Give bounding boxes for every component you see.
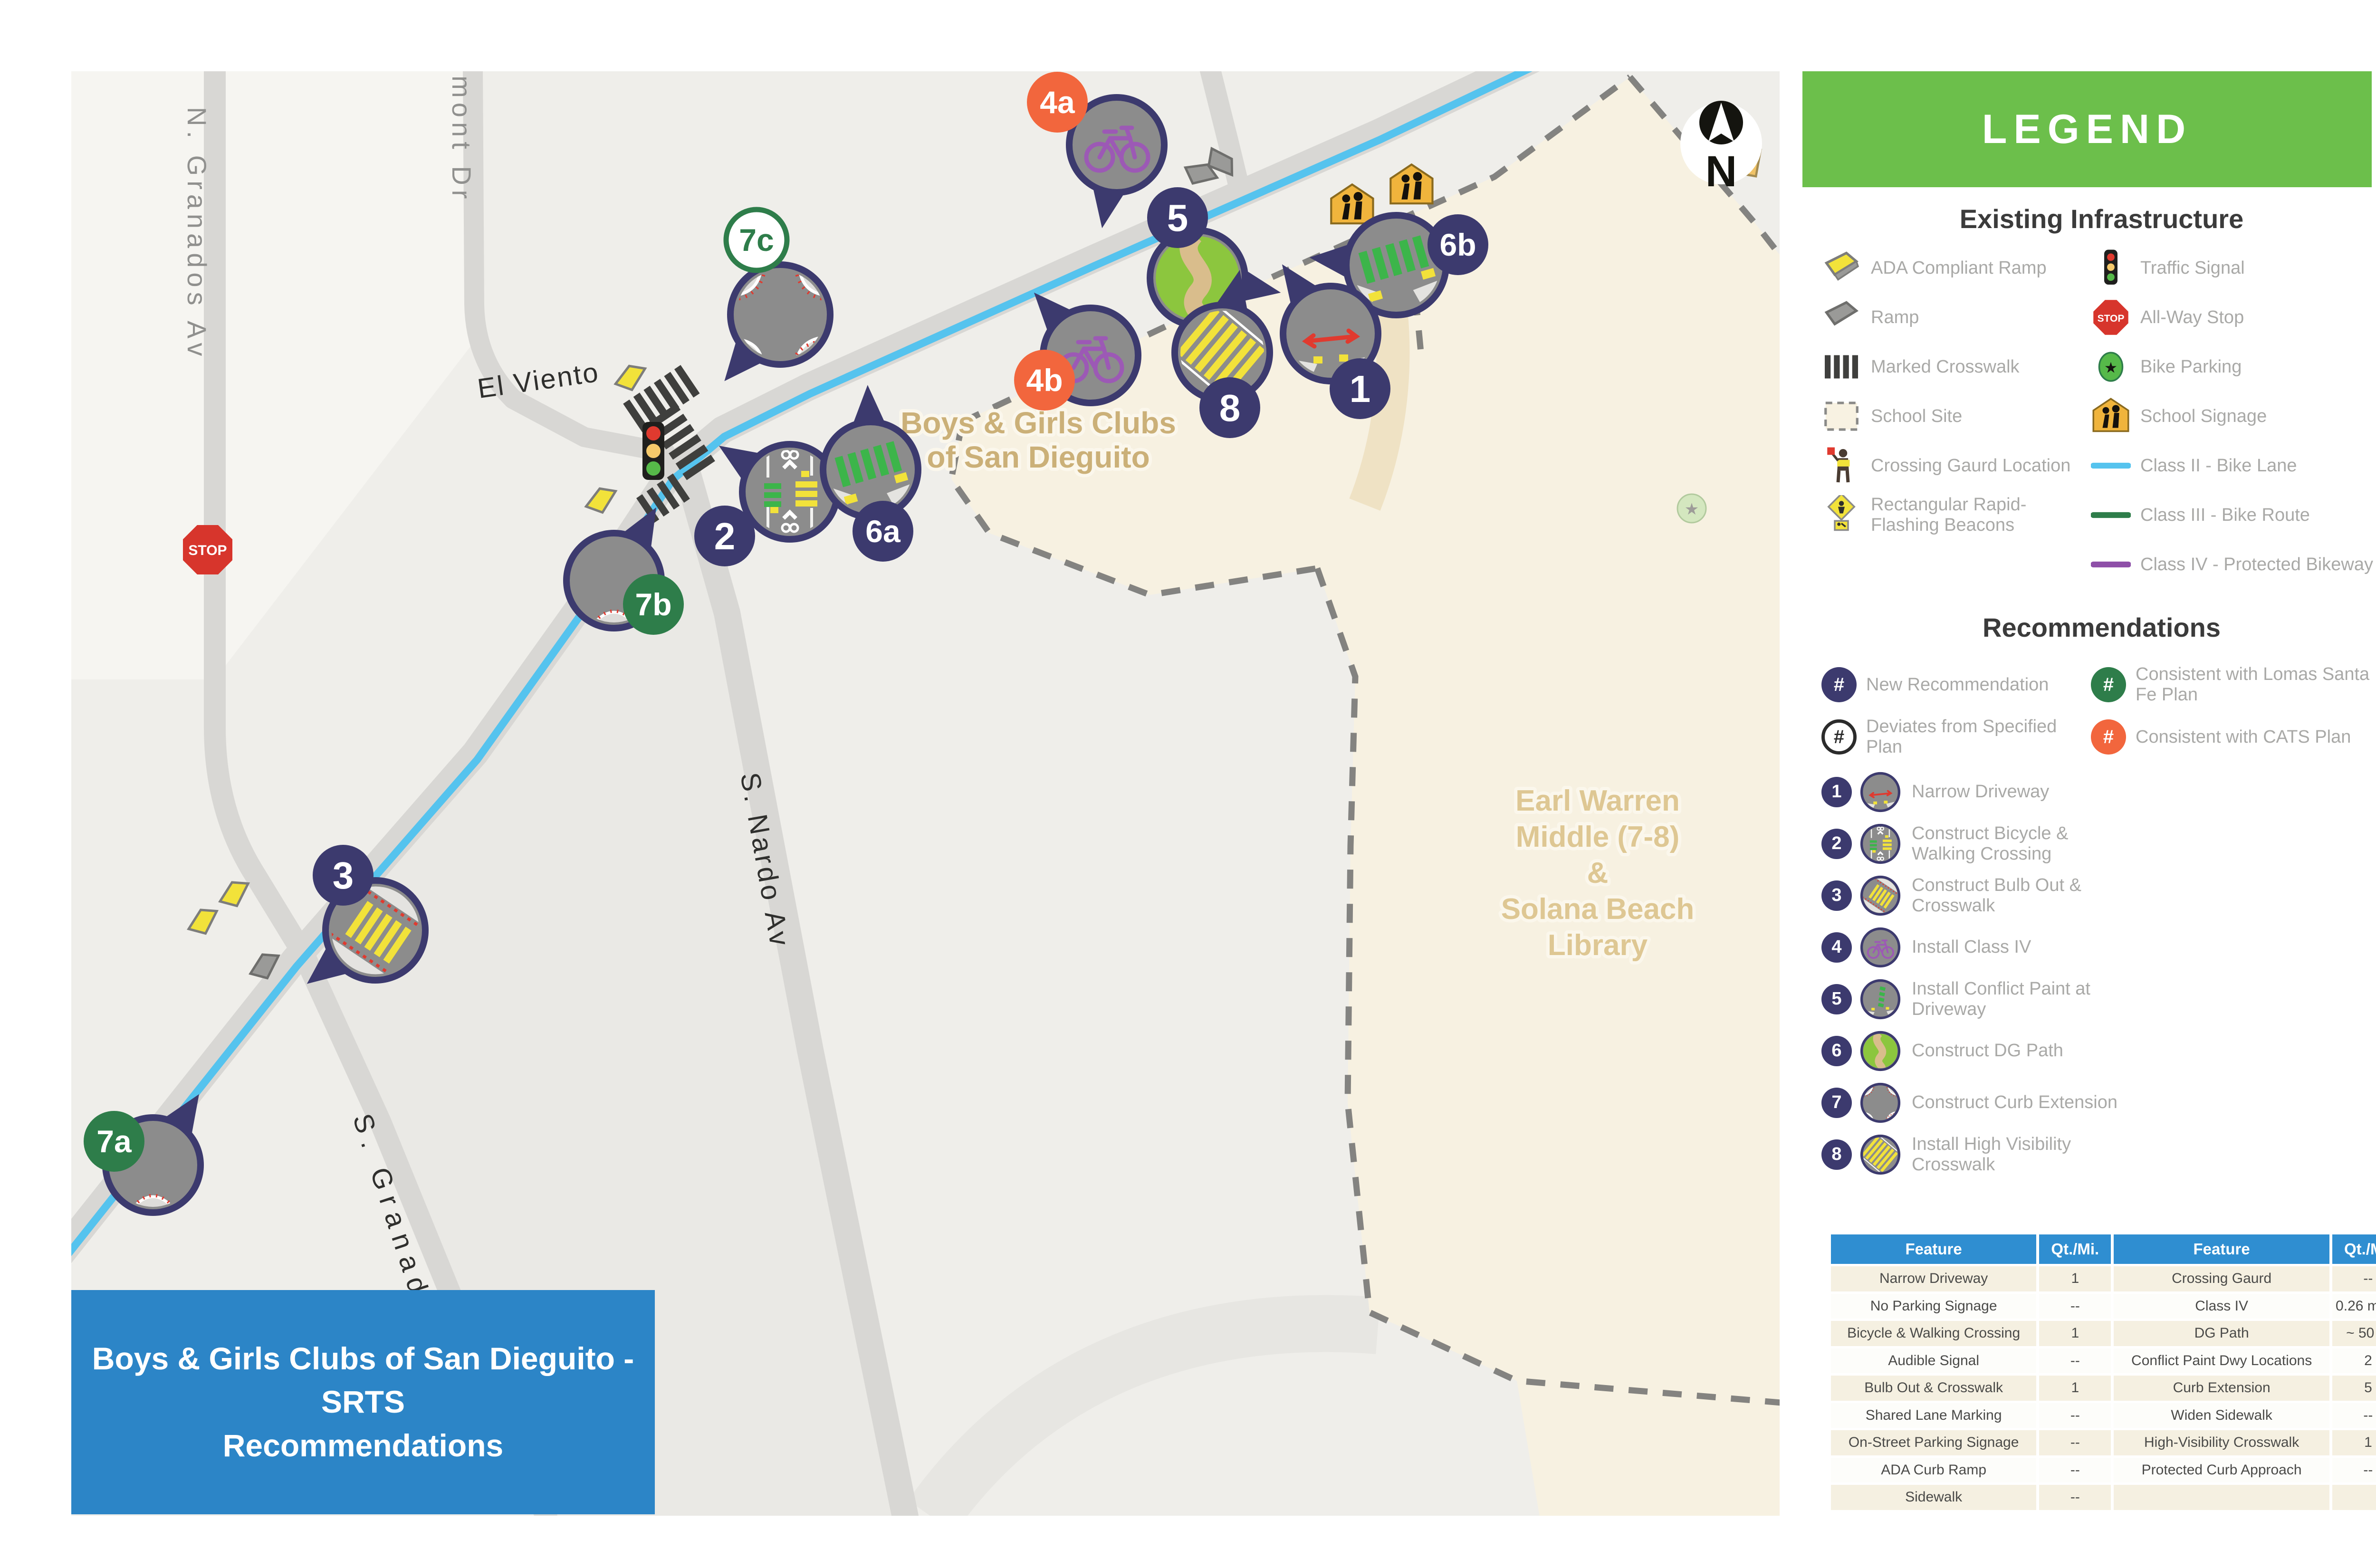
- marked-crosswalk-icon: [1821, 347, 1861, 387]
- bike-parking-icon: ★: [1677, 494, 1706, 523]
- table-cell: ADA Curb Ramp: [1831, 1456, 2038, 1484]
- existing-infrastructure-title: Existing Infrastructure: [1780, 203, 2376, 234]
- rec-badge-label: Consistent with Lomas Santa Fe Plan: [2136, 664, 2376, 705]
- stop-sign-label: STOP: [188, 543, 227, 558]
- rec-item-number: 6: [1821, 1036, 1852, 1066]
- table-cell: --: [2038, 1429, 2112, 1457]
- rec-badge-green: #Consistent with Lomas Santa Fe Plan: [2091, 659, 2376, 711]
- rec-item-4: 4Install Class IV: [1821, 921, 2376, 973]
- school-site-icon: [1821, 396, 1861, 436]
- street-label-n-granados: N. Granados Av: [182, 107, 212, 361]
- legend-item-ramp: Ramp: [1821, 293, 2090, 342]
- legend-title: LEGEND: [1802, 71, 2372, 187]
- school-label-line5: Library: [1548, 929, 1648, 962]
- outline-badge-icon: #: [1821, 719, 1857, 755]
- legend-item-traffic-signal: Traffic Signal: [2091, 243, 2376, 293]
- table-header-row: FeatureQt./Mi.FeatureQt./Mi.: [1831, 1234, 2376, 1265]
- legend-item-label: All-Way Stop: [2140, 307, 2244, 328]
- rec-badge-label: Deviates from Specified Plan: [1866, 717, 2091, 757]
- legend-item-label: Class IV - Protected Bikeway: [2140, 555, 2373, 575]
- legend-existing-left-column: ADA Compliant RampRampMarked CrosswalkSc…: [1821, 243, 2090, 540]
- table-cell: --: [2038, 1484, 2112, 1510]
- marker-badge-label: 7a: [96, 1124, 132, 1159]
- rec-item-1: 1Narrow Driveway: [1821, 766, 2376, 818]
- legend-item-class-iv: Class IV - Protected Bikeway: [2091, 540, 2376, 589]
- feature-quantity-table: FeatureQt./Mi.FeatureQt./Mi. Narrow Driv…: [1831, 1234, 2376, 1510]
- legend-item-class-iii: Class III - Bike Route: [2091, 490, 2376, 540]
- ada-ramp-icon: [1821, 248, 1861, 288]
- table-header-cell: Qt./Mi.: [2331, 1234, 2376, 1265]
- legend-item-label: Rectangular Rapid-Flashing Beacons: [1871, 495, 2090, 535]
- table-cell: Bulb Out & Crosswalk: [1831, 1375, 2038, 1402]
- rec-pictogram-dg: [1859, 1029, 1902, 1073]
- rec-badge-orange: #Consistent with CATS Plan: [2091, 711, 2376, 763]
- rec-item-label: Construct Bulb Out & Crosswalk: [1912, 875, 2121, 916]
- table-row: ADA Curb Ramp--Protected Curb Approach--: [1831, 1456, 2376, 1484]
- legend-item-label: Marked Crosswalk: [1871, 357, 2020, 377]
- rec-item-label: Construct Bicycle & Walking Crossing: [1912, 823, 2121, 864]
- legend-item-label: Class II - Bike Lane: [2140, 456, 2297, 476]
- table-cell: 5: [2331, 1375, 2376, 1402]
- street-label-partial: nmont Dr: [447, 56, 477, 203]
- table-cell: Sidewalk: [1831, 1484, 2038, 1510]
- svg-text:★: ★: [2104, 359, 2117, 376]
- rec-item-label: Install High Visibility Crosswalk: [1912, 1134, 2121, 1175]
- table-cell: [2331, 1484, 2376, 1510]
- legend-item-crossing-guard: Crossing Gaurd Location: [1821, 441, 2090, 490]
- school-signage-icon: [2091, 396, 2131, 436]
- marker-badge-label: 5: [1167, 197, 1188, 239]
- rec-item-number: 2: [1821, 829, 1852, 859]
- table-cell: Protected Curb Approach: [2112, 1456, 2330, 1484]
- table-row: On-Street Parking Signage--High-Visibili…: [1831, 1429, 2376, 1457]
- rec-pictogram-bikewalk: [1859, 822, 1902, 866]
- table-header-cell: Qt./Mi.: [2038, 1234, 2112, 1265]
- table-cell: No Parking Signage: [1831, 1292, 2038, 1320]
- marker-badge-label: 1: [1350, 368, 1371, 410]
- ramp-icon: [1821, 297, 1861, 337]
- rec-item-number: 7: [1821, 1088, 1852, 1118]
- rec-item-label: Construct Curb Extension: [1912, 1092, 2117, 1113]
- legend-item-label: Ramp: [1871, 307, 1919, 328]
- table-cell: ~ 50 ft.: [2331, 1320, 2376, 1348]
- table-header-cell: Feature: [2112, 1234, 2330, 1265]
- legend-item-rrfb: Rectangular Rapid-Flashing Beacons: [1821, 490, 2090, 540]
- crossing-guard-icon: [1821, 446, 1861, 486]
- svg-text:★: ★: [1685, 500, 1699, 519]
- marker-badge-label: 7c: [739, 222, 774, 258]
- table-cell: DG Path: [2112, 1320, 2330, 1348]
- svg-text:STOP: STOP: [2098, 313, 2125, 324]
- class-iii-icon: [2091, 495, 2131, 535]
- marker-badge-label: 7b: [635, 587, 671, 622]
- rec-item-7: 7Construct Curb Extension: [1821, 1077, 2376, 1128]
- table-row: Shared Lane Marking--Widen Sidewalk--: [1831, 1402, 2376, 1429]
- marker-badge-label: 6a: [865, 514, 901, 549]
- table-cell: 1: [2331, 1429, 2376, 1457]
- school-label-line2: Middle (7-8): [1516, 821, 1679, 853]
- legend-item-class-ii: Class II - Bike Lane: [2091, 441, 2376, 490]
- table-cell: Shared Lane Marking: [1831, 1402, 2038, 1429]
- rec-item-label: Construct DG Path: [1912, 1041, 2063, 1061]
- map-title-line2: Recommendations: [223, 1424, 503, 1467]
- navy-badge-icon: #: [1821, 667, 1857, 702]
- table-row: Bulb Out & Crosswalk1Curb Extension5: [1831, 1375, 2376, 1402]
- legend-item-label: School Signage: [2140, 406, 2267, 427]
- north-label: N: [1705, 147, 1737, 196]
- marker-badge-label: 4b: [1026, 363, 1063, 398]
- legend-item-school-site: School Site: [1821, 392, 2090, 441]
- marker-badge-label: 8: [1219, 387, 1241, 429]
- marker-badge-label: 2: [714, 515, 736, 557]
- orange-badge-icon: #: [2091, 719, 2126, 755]
- legend-existing-right-column: Traffic SignalSTOPAll-Way Stop★Bike Park…: [2091, 243, 2376, 589]
- table-cell: Bicycle & Walking Crossing: [1831, 1320, 2038, 1348]
- class-ii-icon: [2091, 446, 2131, 486]
- table-cell: 1: [2038, 1320, 2112, 1348]
- rec-item-number: 1: [1821, 777, 1852, 807]
- rec-item-5: 5Install Conflict Paint at Driveway: [1821, 973, 2376, 1025]
- class-iv-icon: [2091, 545, 2131, 584]
- school-label-line1: Earl Warren: [1515, 784, 1680, 817]
- table-cell: Class IV: [2112, 1292, 2330, 1320]
- map-title-box: Boys & Girls Clubs of San Dieguito - SRT…: [71, 1290, 655, 1514]
- legend-item-school-signage: School Signage: [2091, 392, 2376, 441]
- table-cell: --: [2331, 1402, 2376, 1429]
- table-cell: 1: [2038, 1265, 2112, 1293]
- rec-badge-outline: #Deviates from Specified Plan: [1821, 711, 2091, 763]
- table-cell: On-Street Parking Signage: [1831, 1429, 2038, 1457]
- table-cell: Crossing Gaurd: [2112, 1265, 2330, 1293]
- recommendation-items-legend: 1Narrow Driveway2Construct Bicycle & Wal…: [1821, 766, 2376, 1180]
- rec-item-label: Narrow Driveway: [1912, 782, 2049, 802]
- rec-badge-navy: #New Recommendation: [1821, 659, 2091, 711]
- rec-item-number: 3: [1821, 880, 1852, 911]
- bike-parking-icon: ★: [2091, 347, 2131, 387]
- table-cell: --: [2331, 1456, 2376, 1484]
- marker-badge-label: 3: [333, 854, 354, 897]
- traffic-signal-icon: [2091, 248, 2131, 288]
- table-header-cell: Feature: [1831, 1234, 2038, 1265]
- table-cell: --: [2038, 1402, 2112, 1429]
- table-cell: 1: [2038, 1375, 2112, 1402]
- table-cell: Curb Extension: [2112, 1375, 2330, 1402]
- rec-badge-label: Consistent with CATS Plan: [2136, 727, 2351, 747]
- rec-item-label: Install Class IV: [1912, 937, 2031, 957]
- rec-item-3: 3Construct Bulb Out & Crosswalk: [1821, 870, 2376, 921]
- page: STOP ★ N. Granados Av nmont Dr El Viento…: [0, 0, 2376, 1568]
- table-cell: Conflict Paint Dwy Locations: [2112, 1347, 2330, 1375]
- map-title-line1: Boys & Girls Clubs of San Dieguito - SRT…: [71, 1337, 655, 1424]
- rec-item-8: 8Install High Visibility Crosswalk: [1821, 1128, 2376, 1180]
- table-row: Bicycle & Walking Crossing1DG Path~ 50 f…: [1831, 1320, 2376, 1348]
- school-label-line3: &: [1587, 857, 1609, 889]
- rec-pictogram-curb4: [1859, 1081, 1902, 1125]
- table-row: Audible Signal--Conflict Paint Dwy Locat…: [1831, 1347, 2376, 1375]
- legend-panel: LEGEND Existing Infrastructure ADA Compl…: [1780, 0, 2376, 1568]
- legend-item-label: Crossing Gaurd Location: [1871, 456, 2070, 476]
- green-badge-icon: #: [2091, 667, 2126, 702]
- rec-pictogram-highvis: [1859, 1133, 1902, 1176]
- rec-item-2: 2Construct Bicycle & Walking Crossing: [1821, 818, 2376, 870]
- bgc-label-line1: Boys & Girls Clubs: [901, 406, 1176, 440]
- table-cell: Widen Sidewalk: [2112, 1402, 2330, 1429]
- traffic-signal-icon: [642, 422, 664, 480]
- legend-item-label: Bike Parking: [2140, 357, 2242, 377]
- school-label-line4: Solana Beach: [1501, 893, 1695, 926]
- recommendation-badge-legend: #New Recommendation#Consistent with Loma…: [1821, 659, 2376, 763]
- rec-item-number: 8: [1821, 1139, 1852, 1170]
- rec-item-number: 4: [1821, 932, 1852, 963]
- table-cell: --: [2038, 1456, 2112, 1484]
- legend-item-ada-ramp: ADA Compliant Ramp: [1821, 243, 2090, 293]
- legend-item-label: Traffic Signal: [2140, 258, 2245, 278]
- rec-pictogram-narrow: [1859, 770, 1902, 814]
- marker-badge-label: 6b: [1439, 227, 1476, 262]
- table-cell: --: [2038, 1292, 2112, 1320]
- table-cell: [2112, 1484, 2330, 1510]
- table-cell: --: [2331, 1265, 2376, 1293]
- rec-item-number: 5: [1821, 984, 1852, 1014]
- rec-pictogram-bike: [1859, 926, 1902, 969]
- table-row: No Parking Signage--Class IV0.26 miles: [1831, 1292, 2376, 1320]
- table-cell: Narrow Driveway: [1831, 1265, 2038, 1293]
- table-row: Narrow Driveway1Crossing Gaurd--: [1831, 1265, 2376, 1293]
- rec-item-6: 6Construct DG Path: [1821, 1025, 2376, 1077]
- rrfb-icon: [1821, 495, 1861, 535]
- legend-item-marked-crosswalk: Marked Crosswalk: [1821, 342, 2090, 392]
- table-cell: Audible Signal: [1831, 1347, 2038, 1375]
- rec-pictogram-bulbout: [1859, 874, 1902, 918]
- all-way-stop-icon: STOP: [183, 525, 232, 574]
- rec-pictogram-conflict: [1859, 977, 1902, 1021]
- marker-badge-label: 4a: [1040, 85, 1075, 120]
- table-cell: 0.26 miles: [2331, 1292, 2376, 1320]
- legend-item-label: ADA Compliant Ramp: [1871, 258, 2047, 278]
- all-way-stop-icon: STOP: [2091, 297, 2131, 337]
- legend-item-all-way-stop: STOPAll-Way Stop: [2091, 293, 2376, 342]
- table-cell: 2: [2331, 1347, 2376, 1375]
- legend-item-bike-parking: ★Bike Parking: [2091, 342, 2376, 392]
- legend-item-label: Class III - Bike Route: [2140, 505, 2310, 526]
- rec-badge-label: New Recommendation: [1866, 675, 2049, 695]
- marker-bubble: [730, 265, 830, 364]
- bgc-label-line2: of San Dieguito: [927, 440, 1150, 474]
- recommendations-title: Recommendations: [1780, 612, 2376, 643]
- table-cell: High-Visibility Crosswalk: [2112, 1429, 2330, 1457]
- legend-item-label: School Site: [1871, 406, 1962, 427]
- rec-item-label: Install Conflict Paint at Driveway: [1912, 979, 2121, 1020]
- table-row: Sidewalk--: [1831, 1484, 2376, 1510]
- table-cell: --: [2038, 1347, 2112, 1375]
